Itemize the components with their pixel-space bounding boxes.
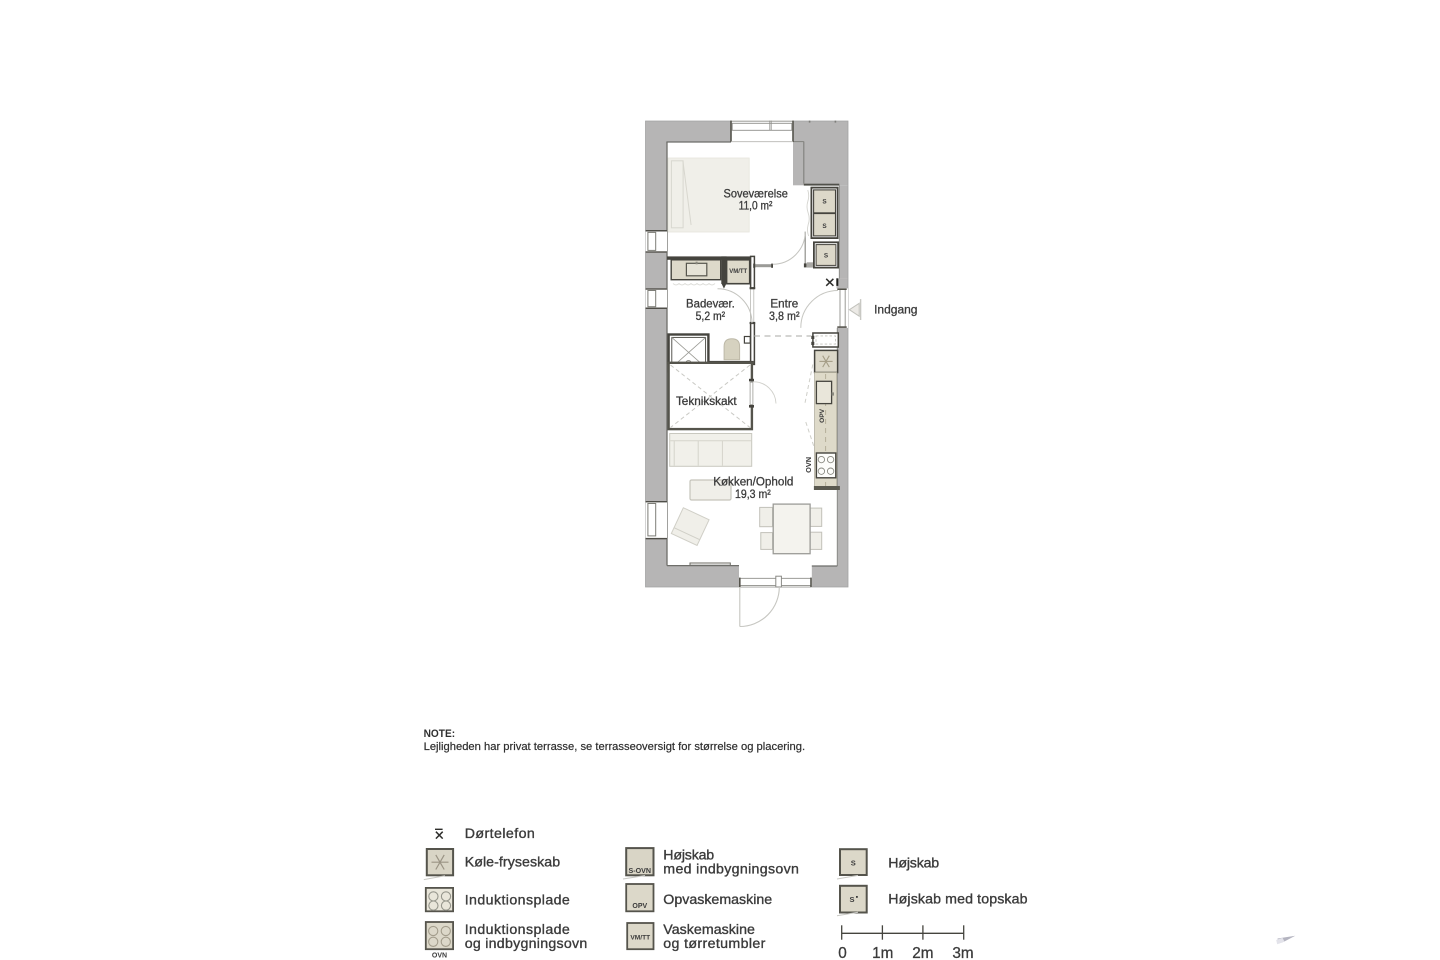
svg-text:11,0 m²: 11,0 m² (739, 199, 773, 213)
svg-text:3,8 m²: 3,8 m² (769, 309, 800, 323)
svg-text:S: S (822, 223, 827, 230)
svg-text:2m: 2m (912, 945, 933, 960)
svg-text:Lejligheden har privat terrass: Lejligheden har privat terrasse, se terr… (424, 741, 805, 753)
svg-text:Teknikskakt: Teknikskakt (676, 394, 737, 408)
svg-text:OPV: OPV (819, 408, 826, 422)
svg-text:Indgang: Indgang (874, 303, 917, 317)
svg-text:3m: 3m (952, 945, 973, 960)
svg-text:Højskab med topskab: Højskab med topskab (888, 892, 1027, 908)
svg-text:VM/TT: VM/TT (630, 935, 650, 942)
svg-text:S: S (851, 859, 856, 868)
svg-text:VM/TT: VM/TT (729, 269, 747, 275)
svg-text:Induktionsplade: Induktionsplade (465, 892, 570, 908)
svg-text:Køle-fryseskab: Køle-fryseskab (465, 855, 561, 871)
svg-text:S: S (822, 199, 827, 206)
svg-text:S-OVN: S-OVN (629, 866, 652, 875)
svg-text:S: S (849, 895, 854, 904)
svg-text:0: 0 (838, 945, 847, 960)
svg-text:med indbygningsovn: med indbygningsovn (663, 862, 799, 878)
svg-text:og tørretumbler: og tørretumbler (663, 936, 765, 952)
svg-text:1m: 1m (872, 945, 893, 960)
svg-text:OPV: OPV (632, 903, 647, 910)
svg-text:Opvaskemaskine: Opvaskemaskine (663, 892, 772, 908)
svg-text:Højskab: Højskab (888, 855, 939, 871)
svg-text:19,3 m²: 19,3 m² (735, 487, 771, 501)
svg-text:S: S (824, 253, 829, 260)
svg-text:Dørtelefon: Dørtelefon (465, 826, 535, 842)
svg-text:OVN: OVN (432, 953, 447, 960)
svg-text:NOTE:: NOTE: (424, 728, 456, 740)
svg-text:5,2 m²: 5,2 m² (696, 309, 726, 323)
svg-text:OVN: OVN (806, 457, 813, 473)
svg-text:og indbygningsovn: og indbygningsovn (465, 936, 588, 952)
